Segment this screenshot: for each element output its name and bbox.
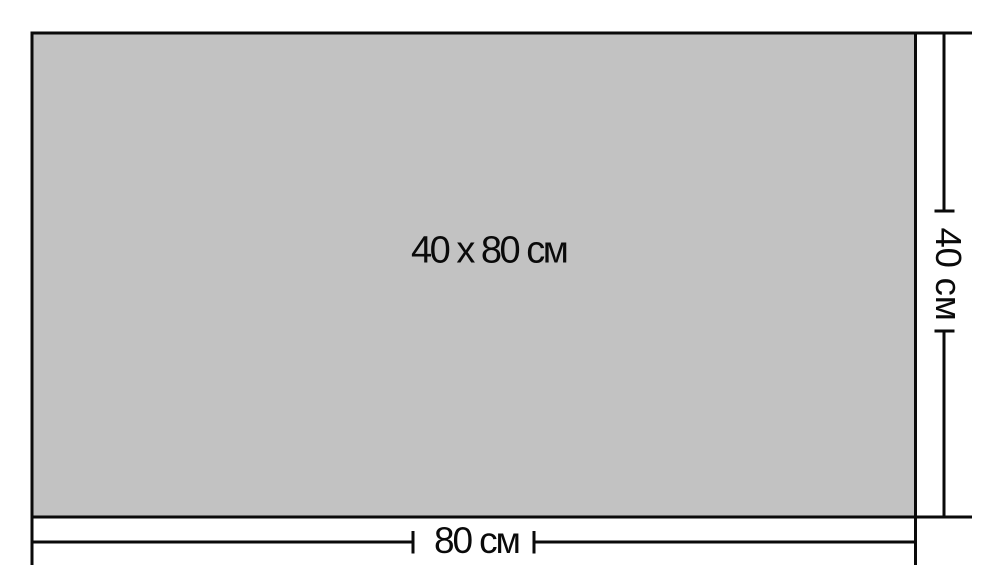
svg-text:40 x 80 см: 40 x 80 см	[411, 230, 567, 272]
svg-text:80 см: 80 см	[434, 520, 519, 561]
svg-text:40 см: 40 см	[928, 228, 969, 321]
